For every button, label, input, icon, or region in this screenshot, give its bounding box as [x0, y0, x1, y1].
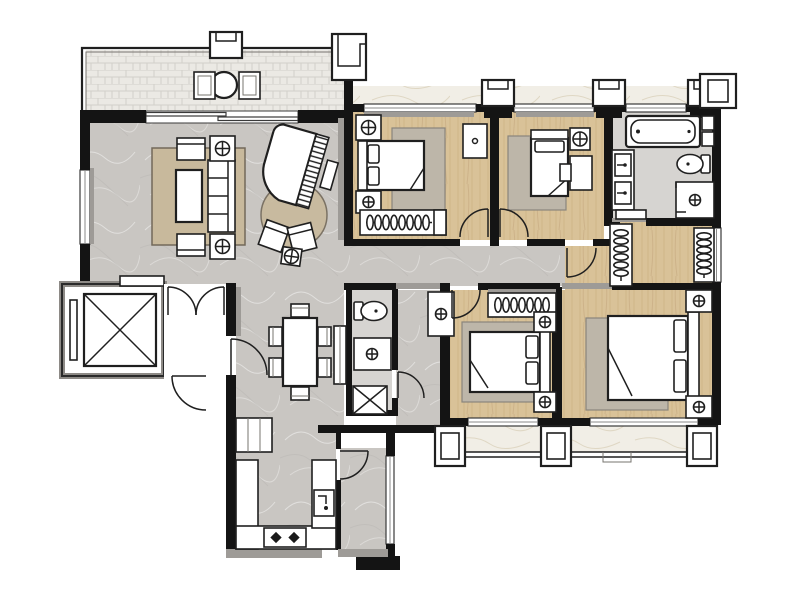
floor-plan-canvas	[0, 0, 800, 600]
window-bedroom-2	[514, 104, 594, 112]
dining-chair-top	[291, 304, 309, 317]
dining-table	[283, 318, 317, 386]
bedroom-2-bed	[531, 130, 568, 196]
terrace-chair-left	[194, 72, 215, 99]
rear-balcony-floor	[448, 426, 700, 452]
shower-valve-icon	[690, 195, 701, 206]
closet-wardrobe-right	[694, 228, 714, 282]
master-nightstand-top	[686, 290, 712, 312]
window-master-bath	[626, 104, 686, 112]
dining-chair-r1	[318, 327, 331, 346]
bath-bench	[616, 210, 646, 219]
toilet	[354, 302, 387, 321]
window-bedroom-3	[468, 418, 538, 426]
double-vanity	[612, 150, 634, 210]
sofa	[208, 160, 235, 232]
dining-chair-r2	[318, 358, 331, 377]
cap-terrace-corner	[332, 34, 366, 80]
cooktop	[264, 528, 306, 547]
cap-terrace-top	[210, 32, 242, 58]
armchair-top	[177, 138, 205, 160]
closet-wardrobe-left	[610, 224, 632, 286]
plant-icon	[362, 121, 376, 135]
window-bedroom-1	[364, 104, 476, 112]
dining-cabinet	[334, 326, 346, 384]
bedroom-1-nightstand-top	[356, 115, 381, 140]
armchair-bottom	[177, 234, 205, 256]
sliding-door-terrace	[146, 111, 298, 123]
utility-shaft	[353, 386, 387, 414]
cap-top-right-corner	[700, 74, 736, 108]
hall-vanity	[428, 292, 454, 336]
lamp-icon	[540, 397, 551, 408]
bedroom-3-bed	[470, 330, 550, 394]
dining-chair-bottom	[291, 387, 309, 400]
faucet-icon	[436, 309, 447, 320]
master-shower	[676, 182, 714, 218]
utility-balcony-floor	[340, 448, 386, 549]
master-toilet	[677, 155, 710, 174]
bedroom-3-nightstand-top	[534, 312, 556, 332]
dining-chair-l2	[269, 358, 282, 377]
kitchen-sink	[314, 490, 334, 516]
plant-icon	[216, 240, 230, 254]
lamp-icon	[694, 296, 705, 307]
shower	[354, 338, 391, 370]
window-living-left	[80, 170, 90, 244]
elevator-counterweight	[70, 300, 77, 360]
window-master-bedroom	[590, 418, 698, 426]
dining-chair-l1	[269, 327, 282, 346]
plant-stand-top	[210, 136, 235, 161]
bedroom-2-nightstand	[570, 128, 590, 150]
lamp-icon	[363, 197, 374, 208]
window-utility	[386, 456, 394, 544]
bedroom-1-bed	[358, 141, 424, 190]
floor-plan-svg	[0, 0, 800, 600]
terrace-table-set	[194, 72, 260, 99]
lobby-floor	[164, 284, 226, 380]
cap-bay-1	[482, 80, 514, 106]
tea-table	[281, 247, 302, 266]
plant-icon	[216, 142, 230, 156]
shoe-cabinet	[236, 418, 272, 452]
plant-icon	[573, 132, 587, 146]
lamp-icon	[540, 317, 551, 328]
bedroom-1-dresser	[463, 124, 487, 158]
bedroom-1-wardrobe	[360, 210, 446, 235]
elevator-block	[62, 276, 164, 376]
master-nightstand-bottom	[686, 396, 712, 418]
cap-bay-2	[593, 80, 625, 106]
shower-valve-icon	[367, 349, 378, 360]
corridor-floor	[344, 246, 565, 286]
bedroom-3-nightstand-bottom	[534, 392, 556, 412]
shaft-vent	[120, 276, 164, 286]
plant-stand-bottom	[210, 234, 235, 259]
master-bed	[608, 312, 699, 404]
terrace-chair-right	[239, 72, 260, 99]
lobby-door	[172, 376, 206, 410]
coffee-table	[176, 170, 202, 222]
bathtub	[626, 116, 700, 147]
lamp-icon	[694, 402, 705, 413]
